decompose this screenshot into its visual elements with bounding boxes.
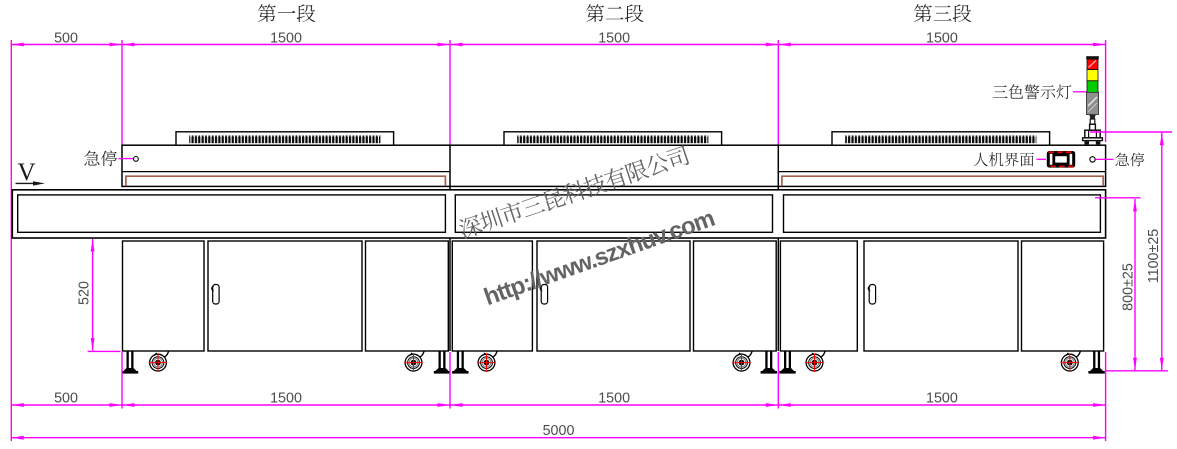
- svg-text:5000: 5000: [543, 423, 575, 439]
- svg-text:V: V: [18, 159, 36, 186]
- svg-text:1100±25: 1100±25: [1146, 229, 1162, 284]
- svg-text:1500: 1500: [270, 391, 302, 407]
- svg-text:1500: 1500: [598, 31, 630, 47]
- svg-text:500: 500: [54, 31, 78, 47]
- svg-text:800±25: 800±25: [1121, 263, 1137, 311]
- svg-text:1500: 1500: [926, 31, 958, 47]
- svg-text:1500: 1500: [598, 391, 630, 407]
- svg-text:520: 520: [77, 281, 93, 305]
- svg-text:1500: 1500: [926, 391, 958, 407]
- svg-text:1500: 1500: [270, 31, 302, 47]
- svg-text:500: 500: [54, 391, 78, 407]
